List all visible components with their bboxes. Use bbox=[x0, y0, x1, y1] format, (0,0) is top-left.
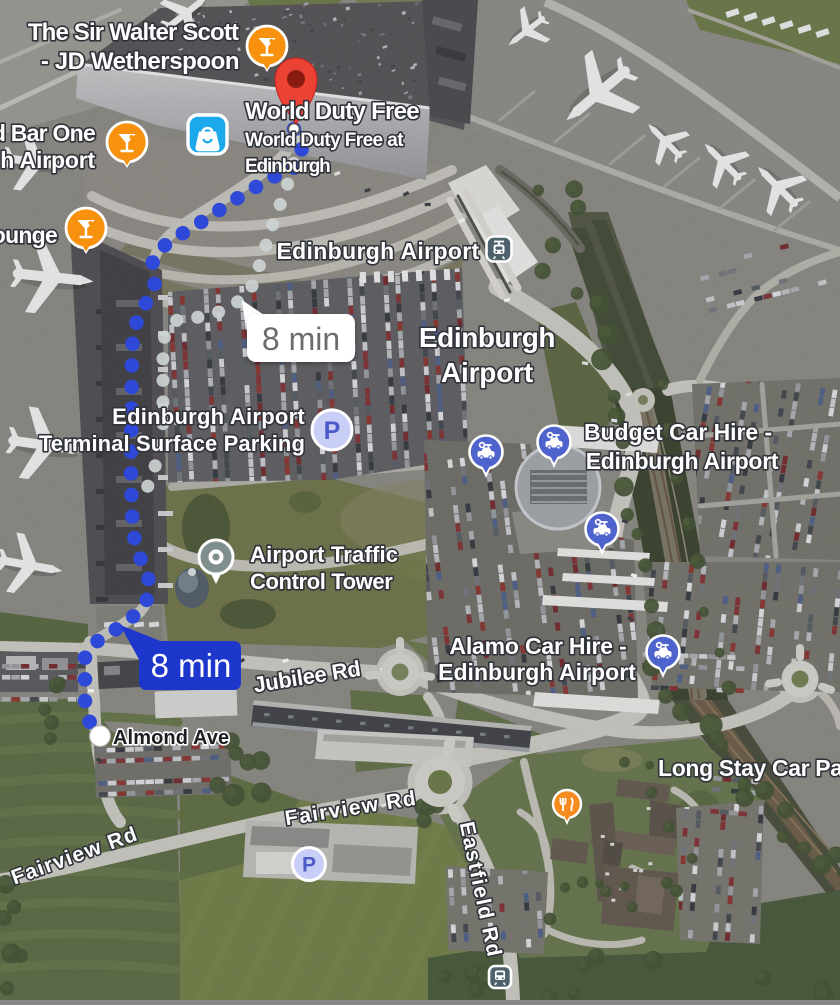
svg-text:World Duty Free: World Duty Free bbox=[245, 98, 419, 125]
svg-text:World Duty Free at: World Duty Free at bbox=[245, 130, 404, 151]
svg-text:Edinburgh: Edinburgh bbox=[245, 156, 330, 177]
svg-text:Budget Car Hire -: Budget Car Hire - bbox=[584, 419, 772, 445]
svg-text:8 min: 8 min bbox=[151, 647, 232, 684]
svg-text:Airport Traffic: Airport Traffic bbox=[250, 542, 398, 567]
svg-text:The Sir Walter Scott: The Sir Walter Scott bbox=[28, 19, 239, 46]
svg-text:d Bar One: d Bar One bbox=[0, 120, 95, 146]
svg-text:Edinburgh Airport: Edinburgh Airport bbox=[276, 238, 479, 264]
svg-text:Long Stay Car Pa: Long Stay Car Pa bbox=[658, 755, 840, 781]
svg-text:Terminal Surface Parking: Terminal Surface Parking bbox=[39, 431, 305, 456]
svg-text:P: P bbox=[324, 417, 341, 445]
svg-text:Edinburgh Airport: Edinburgh Airport bbox=[112, 404, 305, 429]
svg-text:ounge: ounge bbox=[0, 222, 57, 248]
svg-text:Control Tower: Control Tower bbox=[250, 569, 393, 594]
svg-text:Almond Ave: Almond Ave bbox=[113, 727, 229, 749]
svg-text:Edinburgh: Edinburgh bbox=[419, 322, 555, 353]
svg-text:P: P bbox=[302, 854, 316, 877]
svg-text:8 min: 8 min bbox=[262, 321, 340, 357]
svg-text:Edinburgh Airport: Edinburgh Airport bbox=[586, 448, 779, 474]
svg-text:- JD Wetherspoon: - JD Wetherspoon bbox=[41, 48, 239, 75]
svg-text:Edinburgh Airport: Edinburgh Airport bbox=[438, 659, 636, 685]
svg-text:Airport: Airport bbox=[441, 357, 533, 388]
svg-text:Alamo Car Hire -: Alamo Car Hire - bbox=[449, 633, 626, 659]
svg-text:h Airport: h Airport bbox=[0, 147, 95, 173]
